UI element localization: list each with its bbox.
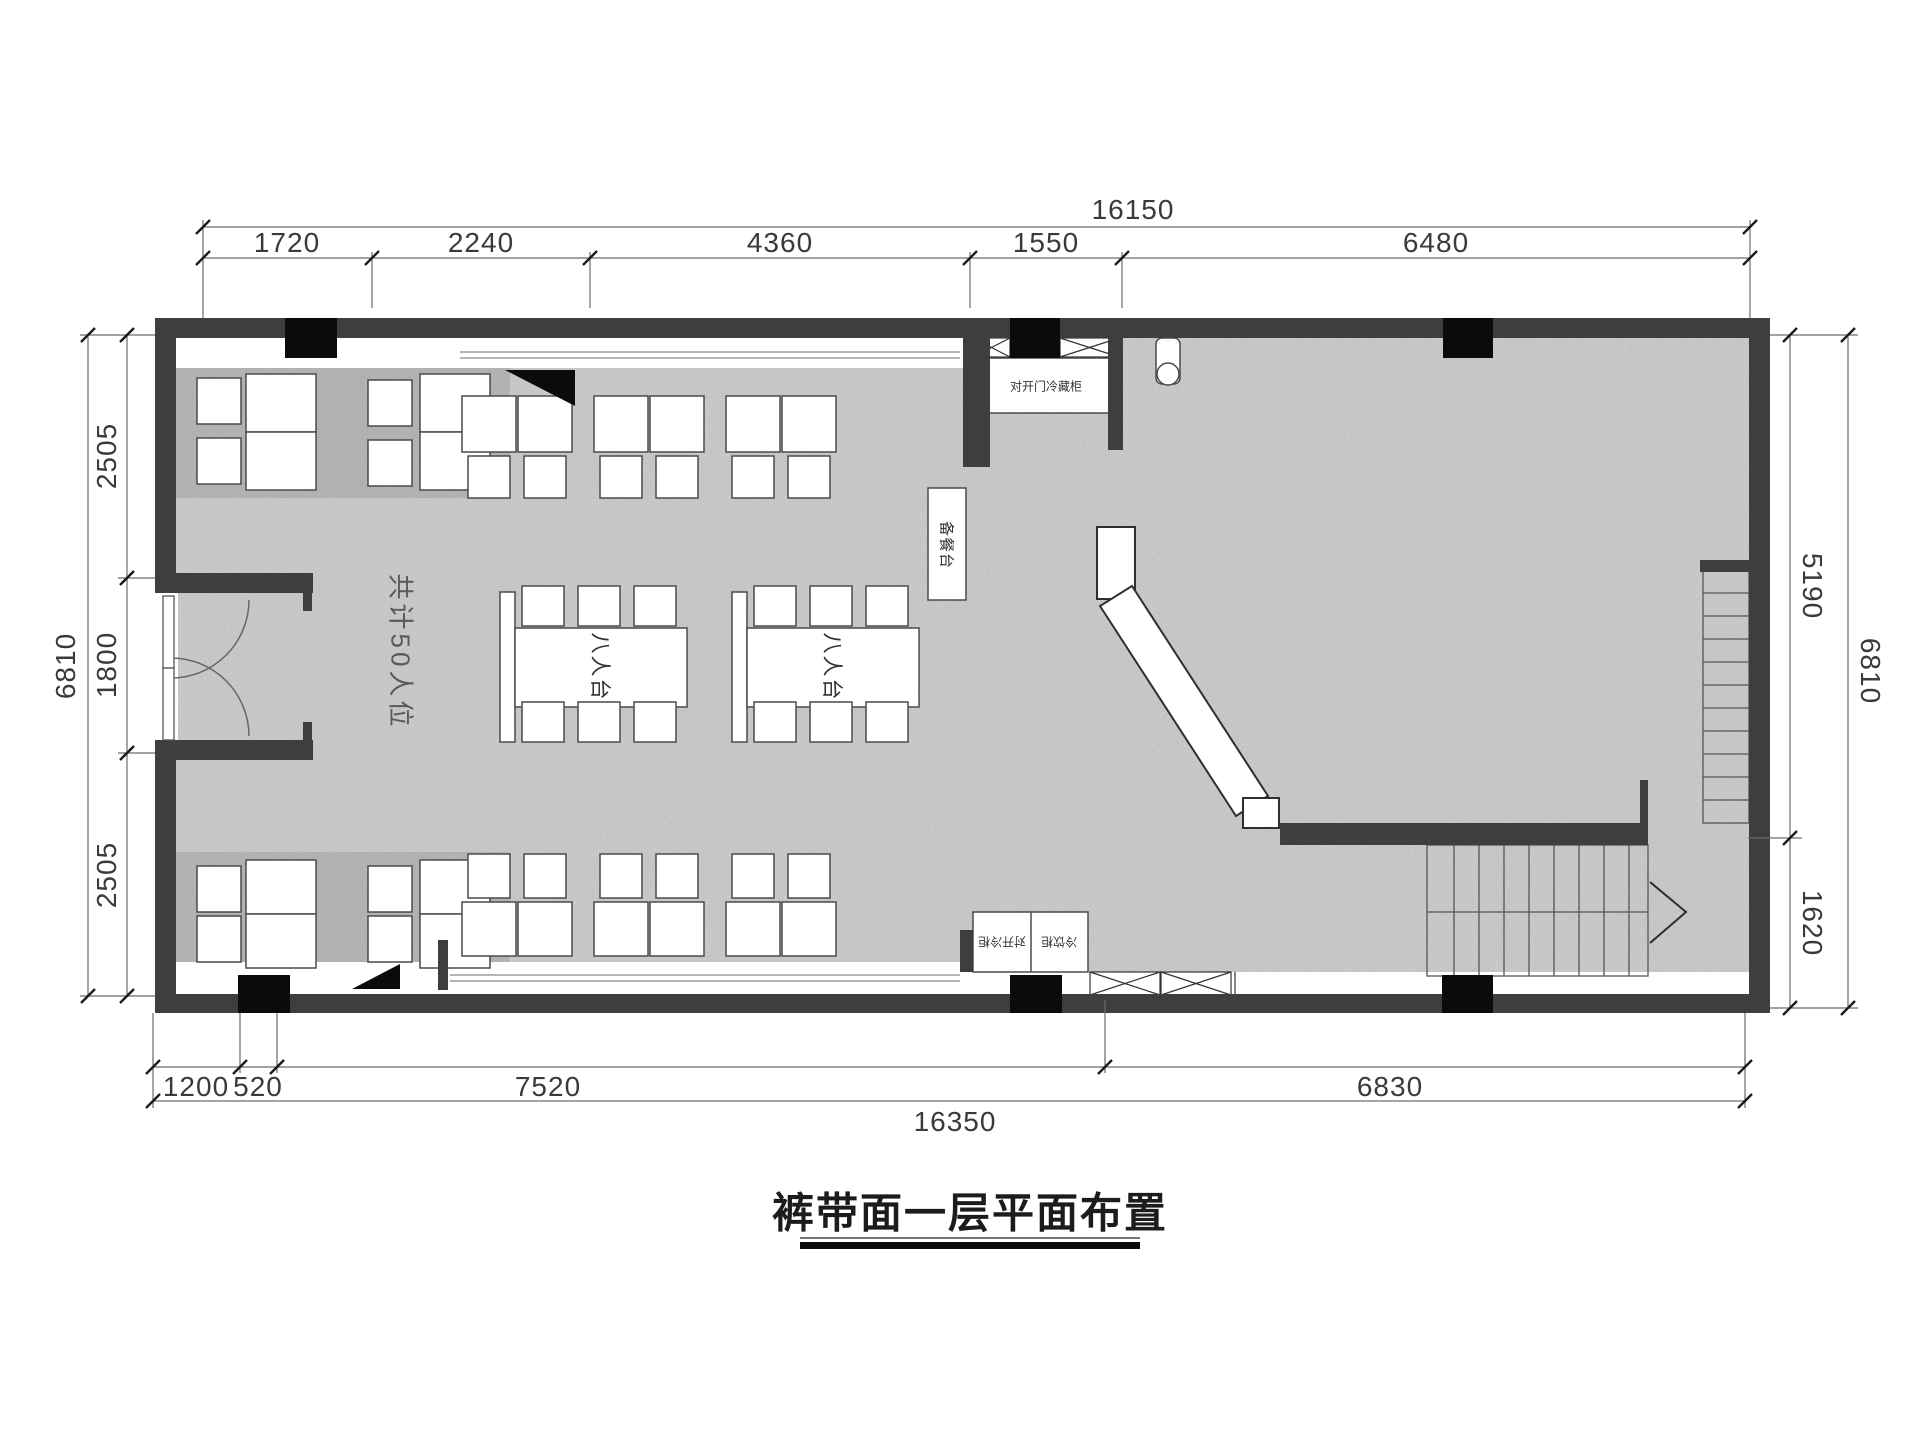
cabinet-left-label: 对开冷柜 [978, 934, 1026, 951]
water-heater-fixture [1156, 338, 1180, 385]
dim-top-seg-5: 6480 [1403, 227, 1469, 259]
service-counter-label: 备餐台 [937, 521, 958, 569]
dim-left-overall: 6810 [50, 633, 82, 699]
table-1-label: 八人台 [586, 633, 616, 702]
dim-top-seg-4: 1550 [1013, 227, 1079, 259]
dim-bottom-seg-1: 1200 [163, 1071, 229, 1103]
fridge-cabinet-label: 对开门冷藏柜 [1010, 378, 1082, 395]
floor-plan-page: 16150 1720 2240 4360 1550 6480 1200 520 … [0, 0, 1920, 1440]
dim-bottom-seg-3: 7520 [515, 1071, 581, 1103]
dim-left-seg-2: 1800 [91, 632, 123, 698]
table-2-label: 八人台 [818, 633, 848, 702]
dim-bottom-seg-2: 520 [233, 1071, 283, 1103]
dim-top-seg-3: 4360 [747, 227, 813, 259]
dim-right-overall: 6810 [1854, 638, 1886, 704]
dim-top-overall: 16150 [1092, 194, 1175, 226]
drawing-title: 裤带面一层平面布置 [772, 1180, 1168, 1241]
dim-bottom-seg-4: 6830 [1357, 1071, 1423, 1103]
dim-left-seg-3: 2505 [91, 842, 123, 908]
dim-right-seg-1: 5190 [1796, 553, 1828, 619]
title-underline-thick [800, 1242, 1140, 1249]
dim-right-seg-2: 1620 [1796, 890, 1828, 956]
dim-top-seg-1: 1720 [254, 227, 320, 259]
dim-left-seg-1: 2505 [91, 423, 123, 489]
dim-bottom-overall: 16350 [914, 1106, 997, 1138]
dim-top-seg-2: 2240 [448, 227, 514, 259]
title-underline-thin [800, 1237, 1140, 1239]
seat-count-label: 共计50人位 [384, 574, 421, 731]
cabinet-right-label: 冷饮柜 [1041, 934, 1077, 951]
